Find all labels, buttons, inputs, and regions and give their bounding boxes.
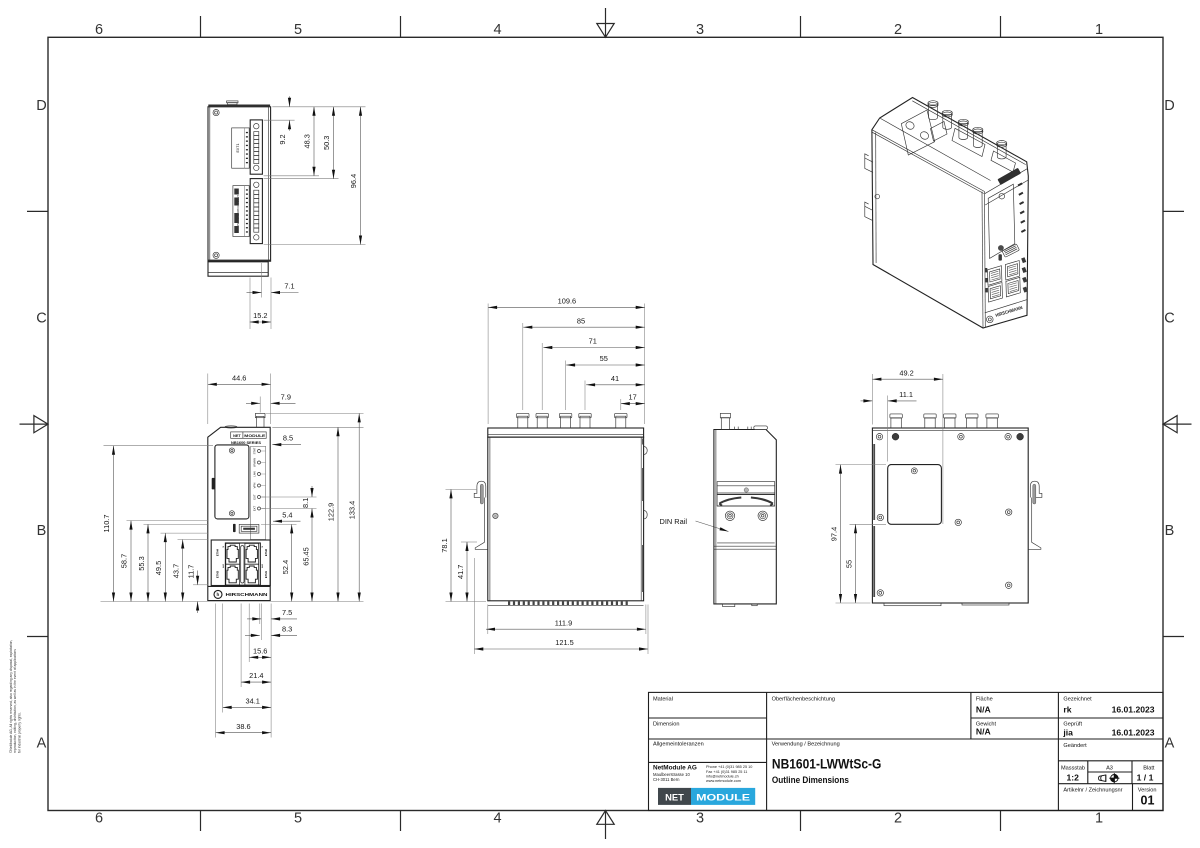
svg-text:VPN: VPN	[253, 483, 257, 489]
svg-text:71: 71	[589, 337, 597, 346]
svg-text:58.7: 58.7	[120, 554, 129, 568]
svg-text:122.9: 122.9	[327, 503, 336, 522]
svg-text:7.1: 7.1	[284, 282, 294, 291]
svg-text:D: D	[36, 98, 46, 114]
svg-text:A: A	[37, 736, 47, 752]
svg-text:C: C	[1164, 311, 1174, 327]
svg-text:1 / 1: 1 / 1	[1137, 773, 1154, 783]
svg-text:EXT: EXT	[253, 505, 257, 511]
svg-text:16.01.2023: 16.01.2023	[1112, 705, 1155, 715]
svg-text:ETH2: ETH2	[264, 548, 268, 556]
svg-text:15.6: 15.6	[253, 646, 267, 655]
svg-text:65.45: 65.45	[301, 547, 310, 566]
svg-text:5: 5	[294, 22, 302, 38]
svg-text:EXT1: EXT1	[236, 144, 240, 153]
svg-text:4: 4	[493, 22, 501, 38]
svg-text:01: 01	[1141, 794, 1155, 808]
svg-text:49.5: 49.5	[154, 561, 163, 575]
svg-text:44.6: 44.6	[232, 373, 246, 382]
svg-text:1:2: 1:2	[1066, 773, 1079, 783]
svg-text:Outline Dimensions: Outline Dimensions	[772, 775, 849, 786]
svg-text:www.netmodule.com: www.netmodule.com	[706, 779, 741, 783]
svg-text:4: 4	[493, 811, 501, 827]
svg-text:7.5: 7.5	[282, 608, 292, 617]
svg-text:41.7: 41.7	[456, 565, 465, 579]
svg-text:NetModule AG: NetModule AG	[653, 764, 697, 771]
svg-text:jia: jia	[1062, 728, 1073, 738]
svg-text:96.4: 96.4	[349, 174, 358, 188]
svg-text:ETH4: ETH4	[216, 548, 220, 556]
svg-text:6: 6	[95, 811, 103, 827]
svg-text:Massstab: Massstab	[1061, 765, 1085, 771]
svg-text:Artikelnr / Zeichnungsnr: Artikelnr / Zeichnungsnr	[1063, 787, 1122, 793]
svg-text:Gezeichnet: Gezeichnet	[1063, 696, 1092, 702]
svg-text:NB1601-LWWtSc-G: NB1601-LWWtSc-G	[772, 757, 882, 772]
svg-text:Dimension: Dimension	[653, 722, 679, 728]
svg-text:Geändert: Geändert	[1063, 743, 1087, 749]
svg-text:D: D	[1164, 98, 1174, 114]
svg-text:55: 55	[845, 560, 854, 568]
svg-text:34.1: 34.1	[246, 697, 260, 706]
svg-text:Blatt: Blatt	[1143, 765, 1155, 771]
svg-text:49.2: 49.2	[899, 368, 913, 377]
svg-text:121.5: 121.5	[555, 638, 574, 647]
svg-text:WWAN: WWAN	[253, 458, 257, 467]
svg-text:ETH1: ETH1	[264, 570, 268, 578]
svg-text:1: 1	[1095, 811, 1103, 827]
svg-text:52.4: 52.4	[281, 560, 290, 574]
svg-text:Fläche: Fläche	[976, 696, 993, 702]
svg-text:A: A	[1165, 736, 1175, 752]
svg-text:109.6: 109.6	[558, 297, 577, 306]
svg-text:9.2: 9.2	[278, 134, 287, 144]
svg-text:8.3: 8.3	[282, 625, 292, 634]
svg-text:A3: A3	[1106, 765, 1113, 771]
svg-text:110.7: 110.7	[102, 515, 111, 533]
svg-text:133.4: 133.4	[348, 501, 357, 520]
svg-text:Fax +41 (0)31 985 25 11: Fax +41 (0)31 985 25 11	[706, 770, 747, 774]
svg-text:ETH3: ETH3	[216, 570, 220, 578]
svg-text:HIRSCHMANN: HIRSCHMANN	[226, 592, 269, 598]
svg-text:38.6: 38.6	[236, 722, 250, 731]
svg-text:3: 3	[696, 22, 704, 38]
svg-text:LA1: LA1	[222, 563, 225, 568]
svg-text:11.7: 11.7	[186, 565, 195, 579]
svg-text:8.1: 8.1	[301, 498, 310, 508]
svg-text:111.9: 111.9	[555, 618, 572, 627]
svg-text:3: 3	[696, 811, 704, 827]
svg-text:S: S	[223, 546, 225, 548]
svg-text:41: 41	[611, 374, 619, 383]
svg-text:LA1: LA1	[261, 563, 264, 568]
svg-text:Allgemeintoleranzen: Allgemeintoleranzen	[653, 741, 704, 747]
svg-text:info@netmodule.ch: info@netmodule.ch	[706, 774, 739, 778]
svg-text:50.3: 50.3	[322, 136, 331, 150]
svg-text:Verwendung / Bezeichnung: Verwendung / Bezeichnung	[772, 741, 840, 747]
svg-text:8.5: 8.5	[283, 434, 293, 443]
svg-text:43.7: 43.7	[172, 564, 181, 578]
svg-text:MODULE: MODULE	[244, 434, 266, 438]
svg-text:48.3: 48.3	[302, 134, 311, 148]
svg-text:B: B	[37, 523, 47, 539]
svg-text:NET: NET	[233, 434, 241, 438]
svg-text:5.4: 5.4	[282, 510, 292, 519]
svg-text:2: 2	[894, 22, 902, 38]
svg-text:CH-3011 Bern: CH-3011 Bern	[653, 777, 680, 782]
svg-text:17: 17	[628, 393, 636, 402]
svg-text:55.3: 55.3	[137, 556, 146, 570]
svg-text:78.1: 78.1	[440, 538, 449, 552]
svg-text:Material: Material	[653, 696, 673, 702]
svg-text:21.4: 21.4	[249, 671, 263, 680]
svg-text:85: 85	[577, 316, 585, 325]
svg-text:55: 55	[600, 354, 608, 363]
svg-text:C: C	[36, 311, 46, 327]
svg-text:N/A: N/A	[976, 727, 991, 737]
svg-text:11.1: 11.1	[899, 390, 913, 399]
svg-text:for industrial property rights: for industrial property rights.	[17, 712, 21, 753]
svg-text:STAT: STAT	[253, 447, 257, 454]
svg-text:B: B	[1165, 523, 1175, 539]
svg-text:5: 5	[294, 811, 302, 827]
svg-text:97.4: 97.4	[830, 527, 839, 541]
svg-text:2: 2	[894, 811, 902, 827]
svg-text:7.9: 7.9	[281, 392, 291, 401]
svg-text:1: 1	[1095, 22, 1103, 38]
svg-text:HIRSCHMANN: HIRSCHMANN	[995, 305, 1024, 318]
svg-text:Oberflächenbeschichtung: Oberflächenbeschichtung	[772, 696, 835, 702]
svg-text:S: S	[262, 546, 264, 548]
svg-text:EXT: EXT	[253, 494, 257, 500]
svg-text:16.01.2023: 16.01.2023	[1112, 728, 1155, 738]
svg-text:N/A: N/A	[976, 705, 991, 715]
svg-text:6: 6	[95, 22, 103, 38]
svg-text:rk: rk	[1063, 705, 1071, 715]
svg-text:NB1600 SERIES: NB1600 SERIES	[231, 441, 261, 445]
svg-text:DIN Rail: DIN Rail	[660, 517, 688, 526]
svg-text:NET: NET	[665, 791, 684, 802]
svg-text:MODULE: MODULE	[696, 791, 750, 802]
svg-text:h: h	[217, 592, 220, 597]
svg-text:LAN: LAN	[253, 471, 257, 476]
svg-text:Version: Version	[1138, 787, 1157, 793]
svg-text:15.2: 15.2	[253, 311, 267, 320]
svg-text:Phone +41 (0)31 985 25 10: Phone +41 (0)31 985 25 10	[706, 765, 752, 769]
